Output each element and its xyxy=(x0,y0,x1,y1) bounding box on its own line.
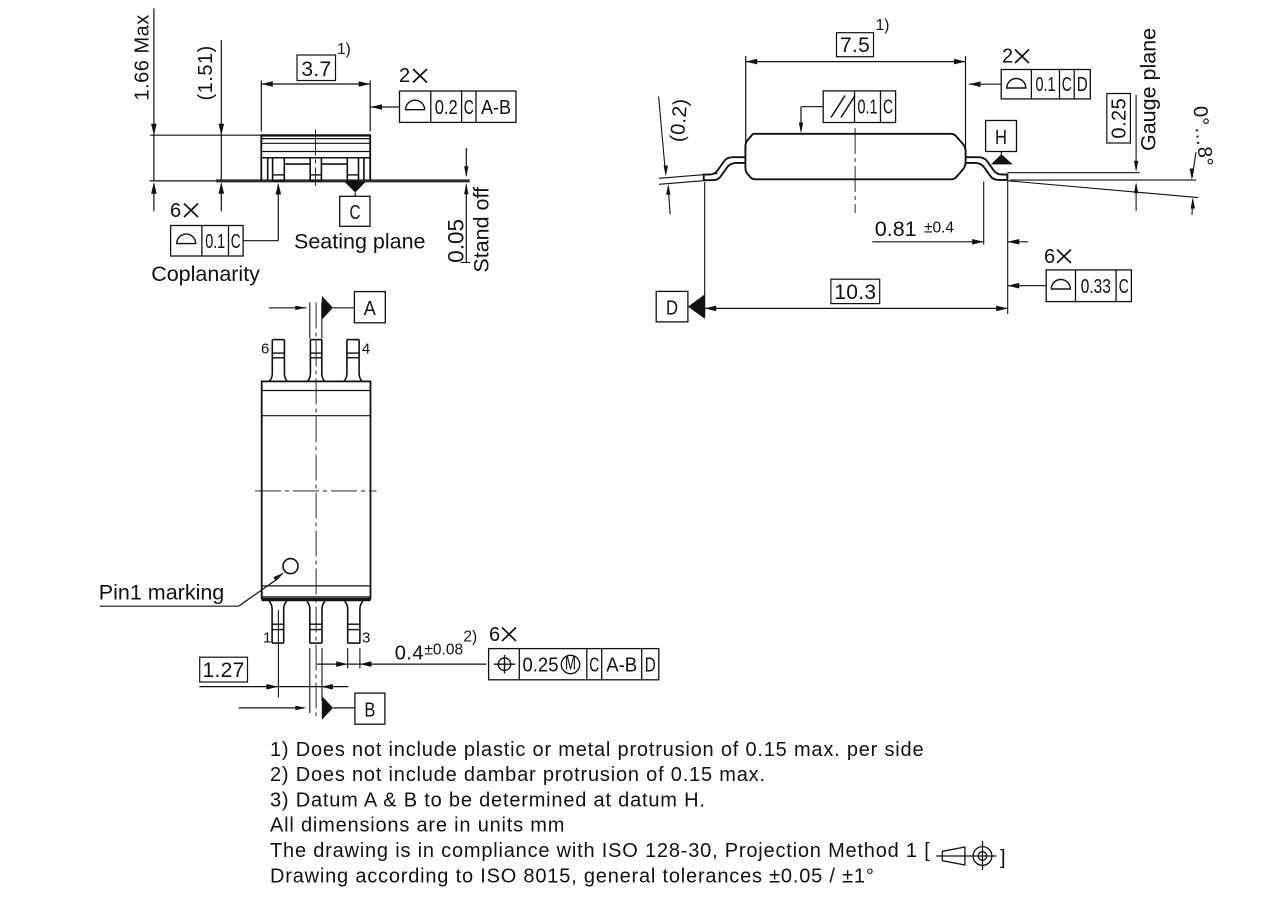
svg-text:6: 6 xyxy=(1044,246,1055,268)
svg-text:0.25: 0.25 xyxy=(1109,98,1131,139)
svg-text:B: B xyxy=(364,700,375,722)
svg-text:C: C xyxy=(589,655,599,677)
svg-text:1) Does not include plastic or: 1) Does not include plastic or metal pro… xyxy=(270,739,924,761)
svg-text:C: C xyxy=(1062,74,1072,96)
svg-text:Seating plane: Seating plane xyxy=(294,230,426,254)
svg-text:Stand off: Stand off xyxy=(470,187,494,273)
svg-text:6: 6 xyxy=(261,341,269,358)
svg-text:0.2: 0.2 xyxy=(435,97,458,119)
svg-text:0.1: 0.1 xyxy=(1036,74,1056,96)
svg-text:2: 2 xyxy=(399,65,410,87)
svg-text:A: A xyxy=(364,298,377,320)
svg-text:C: C xyxy=(350,202,361,224)
svg-text:0.1: 0.1 xyxy=(858,97,878,119)
svg-text:0.05: 0.05 xyxy=(444,219,469,263)
svg-text:D: D xyxy=(645,655,656,677)
svg-text:Pin1 marking: Pin1 marking xyxy=(99,581,224,605)
svg-text:3: 3 xyxy=(362,630,370,647)
svg-text:3) Datum A & B to be determine: 3) Datum A & B to be determined at datum… xyxy=(270,789,706,811)
svg-text:D: D xyxy=(1077,74,1088,96)
svg-text:D: D xyxy=(666,298,678,320)
svg-text:(1.51): (1.51) xyxy=(195,45,217,100)
svg-text:6: 6 xyxy=(170,200,181,222)
svg-text:0.81: 0.81 xyxy=(875,217,917,241)
svg-text:0.33: 0.33 xyxy=(1081,276,1111,298)
svg-text:All dimensions are in units mm: All dimensions are in units mm xyxy=(270,815,565,837)
svg-text:±0.08: ±0.08 xyxy=(424,642,463,659)
svg-text:H: H xyxy=(995,127,1007,149)
svg-text:0.1: 0.1 xyxy=(205,231,225,253)
svg-text:M: M xyxy=(565,653,576,675)
svg-text:2: 2 xyxy=(1002,46,1013,68)
svg-text:C: C xyxy=(1119,276,1129,298)
svg-text:3.7: 3.7 xyxy=(301,58,331,81)
svg-text:1.66 Max: 1.66 Max xyxy=(132,14,154,100)
svg-text:7.5: 7.5 xyxy=(840,34,870,57)
svg-text:0.4: 0.4 xyxy=(395,643,424,665)
svg-text:4: 4 xyxy=(362,341,370,358)
svg-text:C: C xyxy=(464,97,474,119)
svg-text:C: C xyxy=(231,231,241,253)
svg-text:Gauge plane: Gauge plane xyxy=(1137,28,1161,151)
svg-text:0.25: 0.25 xyxy=(523,655,559,677)
svg-text:A-B: A-B xyxy=(481,97,511,119)
svg-text:2): 2) xyxy=(463,628,477,645)
svg-text:Drawing according to ISO 8015,: Drawing according to ISO 8015, general t… xyxy=(270,865,875,887)
svg-text:The drawing is in compliance w: The drawing is in compliance with ISO 12… xyxy=(270,840,931,862)
svg-text:A-B: A-B xyxy=(606,655,637,677)
svg-text:6: 6 xyxy=(489,624,500,646)
svg-text:]: ] xyxy=(1000,847,1006,869)
svg-text:±0.4: ±0.4 xyxy=(924,220,954,237)
svg-text:10.3: 10.3 xyxy=(834,281,876,304)
svg-text:1): 1) xyxy=(337,41,351,58)
svg-text:2) Does not include dambar pro: 2) Does not include dambar protrusion of… xyxy=(270,764,766,786)
svg-text:(0.2): (0.2) xyxy=(667,98,693,143)
svg-text:Coplanarity: Coplanarity xyxy=(151,262,260,286)
svg-text:1: 1 xyxy=(263,630,271,647)
svg-text:1): 1) xyxy=(876,17,890,34)
svg-text:C: C xyxy=(883,97,893,119)
svg-text:1.27: 1.27 xyxy=(203,659,245,682)
